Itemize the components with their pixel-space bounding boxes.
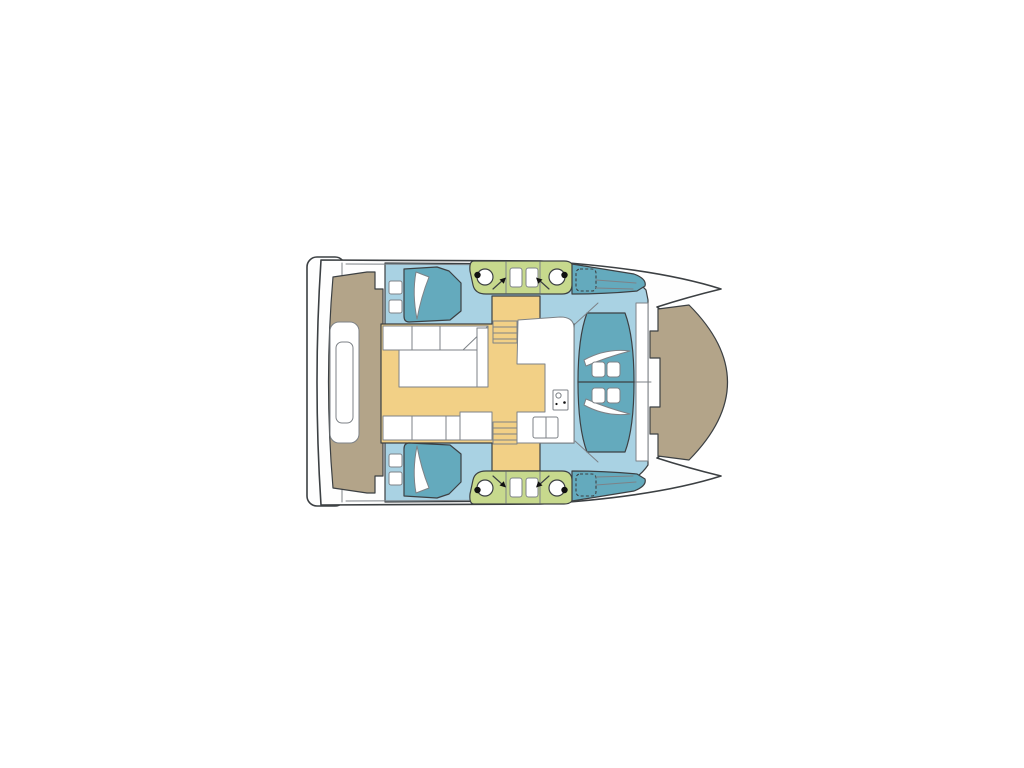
hatch-icon (389, 281, 402, 294)
cockpit-table (336, 342, 353, 423)
basin-icon (526, 478, 538, 497)
forward-cabins (578, 313, 634, 452)
sink-icon (533, 417, 558, 438)
chart-seat (460, 412, 492, 440)
stove-icon (553, 390, 568, 410)
berth-cushion (404, 443, 461, 498)
stairs-starboard (493, 422, 517, 444)
hatch-icon (389, 472, 402, 485)
burner-dot (555, 403, 557, 405)
saloon-furniture (383, 317, 574, 443)
stairs-port (493, 321, 517, 343)
stairs-step-box (493, 422, 517, 444)
stove-body (553, 390, 568, 410)
burner-dot (563, 401, 566, 404)
basin-icon (526, 268, 538, 287)
stairs-step-box (493, 321, 517, 343)
berth-cushion (404, 267, 461, 322)
hatch-icon (389, 300, 402, 313)
saloon-sofa (383, 326, 488, 350)
saloon-table (399, 350, 477, 387)
basin-icon (510, 478, 522, 497)
burner (556, 393, 561, 398)
pillow (607, 362, 620, 377)
pillow (607, 388, 620, 403)
pillow (592, 362, 605, 377)
pillow (592, 388, 605, 403)
catamaran-floorplan-canvas (0, 0, 1024, 768)
basin-icon (510, 268, 522, 287)
sofa-corner-unit (477, 328, 488, 387)
catamaran-floorplan (0, 0, 1024, 768)
hatch-icon (389, 454, 402, 467)
foredeck (650, 305, 728, 460)
